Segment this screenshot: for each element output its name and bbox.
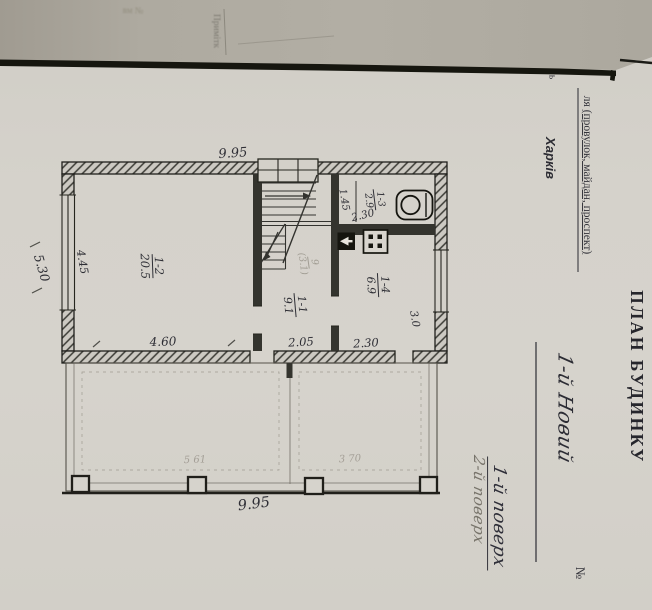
pencil-veranda-right: 3 70 xyxy=(339,454,362,466)
toilet-icon xyxy=(397,191,433,220)
veranda xyxy=(62,363,440,494)
stove-icon xyxy=(364,230,388,253)
floor-designation: 1-й поверх 2-й поверх xyxy=(470,453,508,575)
room-area: 20.5 xyxy=(138,253,151,279)
street-value-handwritten: 1-й Новий xyxy=(555,350,576,465)
staircase xyxy=(256,175,331,271)
margin-note-rule xyxy=(224,9,226,55)
room-number: 1-2 xyxy=(152,253,166,278)
room-label-1-4: 1-4 6.9 xyxy=(365,273,391,298)
dim-room-1-4-depth: 3.0 xyxy=(407,310,421,328)
window-kitchen-right xyxy=(433,250,449,312)
city-label: Харків xyxy=(543,137,557,179)
room-area: 6.9 xyxy=(365,273,378,297)
pencil-area: (3.1) xyxy=(296,252,309,276)
street-caption: ля (провулок, майдан, проспект) xyxy=(581,96,593,254)
floor-plan-drawing xyxy=(0,0,652,610)
room-number: 1-1 xyxy=(294,292,309,317)
floor-denominator: 2-й поверх xyxy=(470,441,486,559)
room-label-1-1: 1-1 9.1 xyxy=(281,292,308,318)
pencil-hall-note: 9 (3.1) xyxy=(296,250,321,275)
document-title: ПЛАН БУДИНКУ xyxy=(628,290,646,464)
pencil-number: 9 xyxy=(307,256,320,269)
scanned-house-plan-document: вм № Примітк xyxy=(0,0,652,610)
room-area: 9.1 xyxy=(281,293,295,318)
dim-room-1-4-width: 2.30 xyxy=(353,336,379,349)
dim-room-1-1-width: 2.05 xyxy=(288,335,314,348)
window-top-stairs xyxy=(258,159,318,182)
numero-symbol: № xyxy=(573,567,587,579)
sink-icon xyxy=(338,233,356,251)
room-number: 1-4 xyxy=(377,273,391,297)
thick-separator-line xyxy=(0,60,616,82)
pencil-veranda-left: 5 61 xyxy=(184,455,207,466)
table-edge-line xyxy=(620,60,652,63)
dim-room-1-2-width: 4.60 xyxy=(149,335,176,349)
cut-letter: ь xyxy=(546,75,557,80)
strip-scratch xyxy=(238,36,334,44)
street-caption-prefix: ля xyxy=(581,96,593,110)
dim-width-top: 9.95 xyxy=(218,146,248,162)
floor-numerator: 1-й поверх xyxy=(487,456,508,575)
room-label-1-2: 1-2 20.5 xyxy=(138,253,165,280)
street-caption-underlined: (провулок, майдан, проспект) xyxy=(581,110,593,255)
